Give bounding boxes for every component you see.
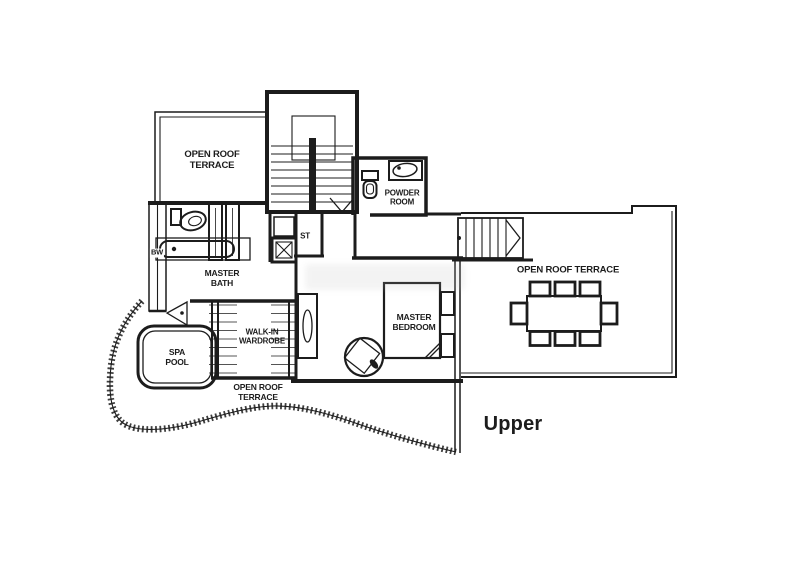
room-label-line: TERRACE: [233, 392, 282, 402]
room-label-terrace-top-left: OPEN ROOF TERRACE: [184, 149, 239, 171]
room-label-line: BEDROOM: [393, 322, 436, 332]
floor-plan-canvas: OPEN ROOF TERRACE POWDER ROOM ST BW MAST…: [0, 0, 800, 566]
room-label-spa-pool: SPA POOL: [165, 347, 188, 367]
room-label-line: WARDROBE: [239, 337, 285, 346]
terrace-right-walls: [461, 206, 676, 377]
room-label-line: MASTER: [205, 268, 240, 278]
room-label-line: ROOM: [385, 198, 420, 207]
room-label-line: POWDER: [385, 189, 420, 198]
room-label-bay-window: BW: [150, 249, 164, 258]
powder-room-sink: [389, 161, 422, 180]
staircase: [267, 92, 357, 212]
room-label-line: POOL: [165, 357, 188, 367]
room-label-line: TERRACE: [184, 160, 239, 171]
floor-level-label: Upper: [484, 413, 543, 437]
room-label-master-bath: MASTER BATH: [205, 268, 240, 288]
watermark: [305, 264, 465, 290]
room-label-master-bedroom: MASTER BEDROOM: [393, 312, 436, 332]
powder-room-toilet: [362, 171, 378, 198]
room-label-line: OPEN ROOF: [233, 382, 282, 392]
room-label-store: ST: [300, 231, 310, 240]
bathtub: [156, 238, 250, 260]
tv-cabinet: [298, 294, 317, 358]
room-label-line: BATH: [205, 278, 240, 288]
hall-cabinet: [274, 217, 294, 236]
shaft-box: [272, 238, 296, 262]
room-label-terrace-lower: OPEN ROOF TERRACE: [233, 382, 282, 402]
terrace-steps: [452, 218, 533, 260]
room-label-line: SPA: [165, 347, 188, 357]
bath-door-swing: [167, 302, 187, 325]
round-chair: [345, 338, 383, 376]
dining-set: [511, 282, 617, 346]
room-label-walk-in-wardrobe: WALK-IN WARDROBE: [239, 328, 285, 347]
room-label-powder-room: POWDER ROOM: [385, 189, 420, 208]
room-label-line: OPEN ROOF: [184, 149, 239, 160]
room-label-line: WALK-IN: [239, 328, 285, 337]
room-label-line: MASTER: [393, 312, 436, 322]
room-label-terrace-right: OPEN ROOF TERRACE: [517, 264, 619, 275]
toilet: [171, 209, 208, 233]
